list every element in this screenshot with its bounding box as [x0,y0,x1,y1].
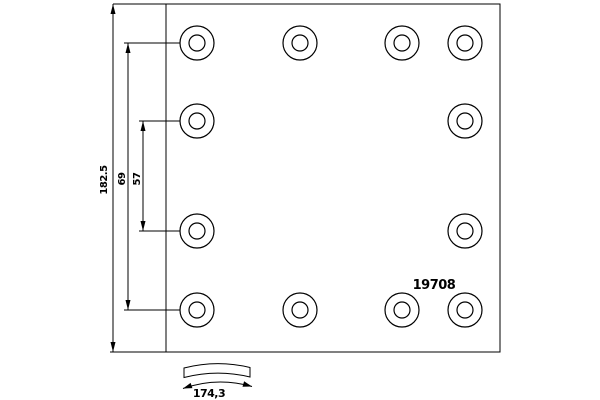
rivet-hole [385,293,419,327]
dimension-label-total-length: 182.5 [99,165,110,195]
curved-lining-band [184,364,250,378]
rivet-hole [180,293,214,327]
arrow-up-icon [111,4,116,14]
rivet-hole-inner-circle [394,302,410,318]
brake-lining-drawing-svg: 182.5 69 57 19708 174,3 [0,0,600,400]
rivet-hole [283,293,317,327]
rivet-hole-inner-circle [457,35,473,51]
rivet-hole-inner-circle [457,113,473,129]
arrow-down-icon [111,342,116,352]
rivet-hole-inner-circle [189,113,205,129]
arrow-left-icon [183,383,192,389]
rivet-hole [180,104,214,138]
rivet-hole-inner-circle [189,223,205,239]
rivet-hole [283,26,317,60]
rivet-hole [385,26,419,60]
arrow-down-icon [126,300,131,310]
rivet-hole-inner-circle [457,223,473,239]
dimension-label-outer-hole-span: 69 [117,172,128,185]
rivet-hole [448,26,482,60]
arrow-up-icon [141,121,146,131]
rivet-hole [180,214,214,248]
arc-width-label: 174,3 [193,387,225,400]
rivet-hole-inner-circle [292,302,308,318]
arrow-right-icon [243,381,253,386]
rivet-hole-inner-circle [292,35,308,51]
rivet-hole-inner-circle [189,35,205,51]
dimension-label-inner-hole-span: 57 [132,172,143,185]
lining-plate-outline [166,4,500,352]
rivet-hole-inner-circle [189,302,205,318]
arrow-up-icon [126,43,131,53]
arrow-down-icon [141,221,146,231]
dimension-inner-hole-span [139,121,181,231]
rivet-hole-inner-circle [457,302,473,318]
part-number-label: 19708 [413,278,456,293]
rivet-hole [448,214,482,248]
rivet-hole [448,104,482,138]
rivet-hole-inner-circle [394,35,410,51]
arc-width-symbol: 174,3 [183,364,252,400]
rivet-hole [448,293,482,327]
rivet-hole [180,26,214,60]
technical-drawing-page: 182.5 69 57 19708 174,3 [0,0,600,400]
